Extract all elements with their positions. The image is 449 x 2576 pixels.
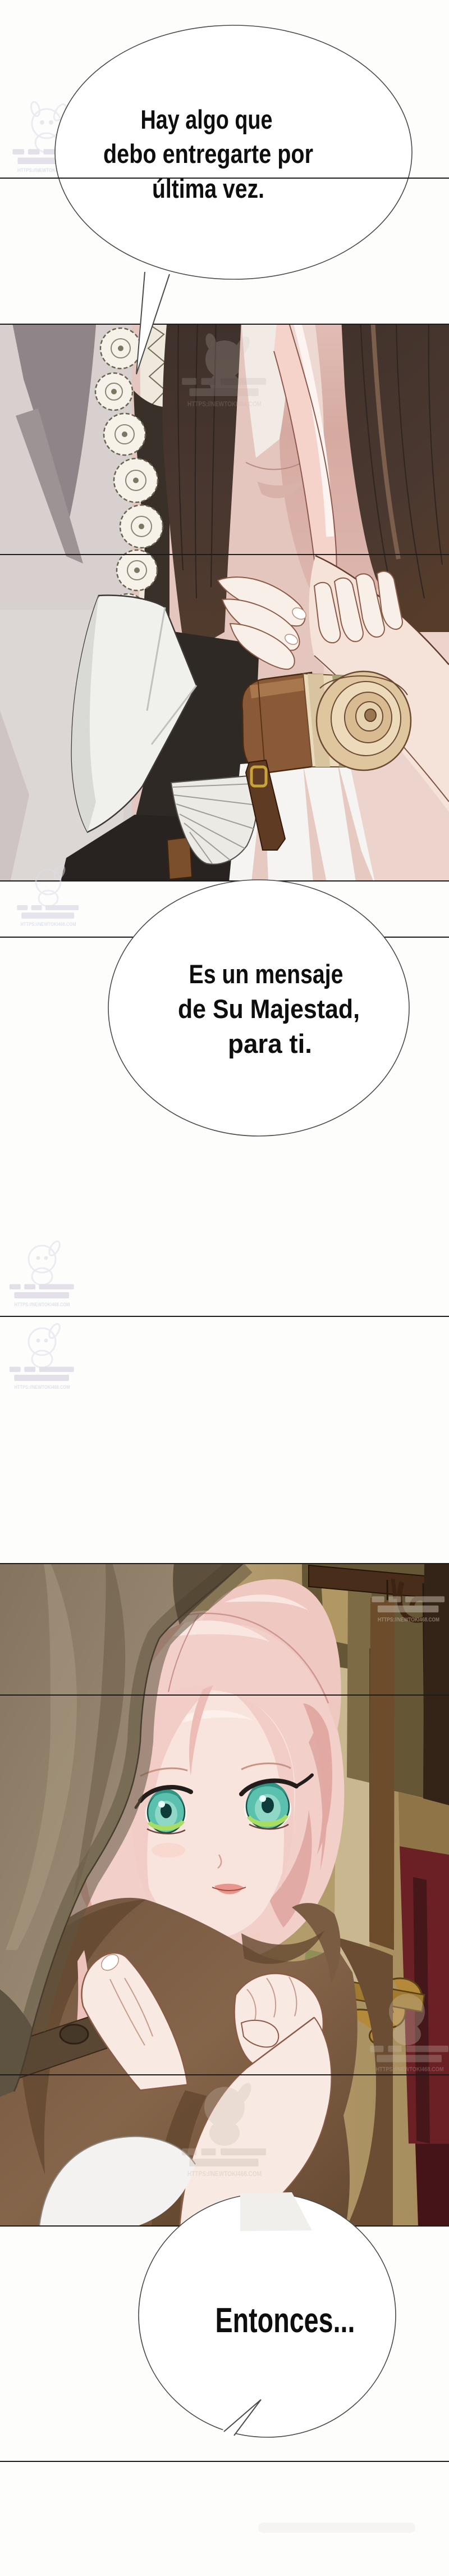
svg-text:para ti.: para ti. bbox=[228, 1029, 312, 1058]
svg-text:HTTPS://NEWTOKI468.COM: HTTPS://NEWTOKI468.COM bbox=[378, 1617, 439, 1623]
svg-text:HTTPS://NEWTOKI468.COM: HTTPS://NEWTOKI468.COM bbox=[187, 400, 262, 408]
svg-text:HTTPS://NEWTOKI468.COM: HTTPS://NEWTOKI468.COM bbox=[187, 2170, 262, 2178]
svg-text:Entonces...: Entonces... bbox=[216, 2301, 355, 2340]
svg-text:debo entregarte por: debo entregarte por bbox=[103, 139, 313, 169]
svg-text:HTTPS://NEWTOKI468.COM: HTTPS://NEWTOKI468.COM bbox=[15, 1384, 70, 1390]
svg-text:de Su Majestad,: de Su Majestad, bbox=[178, 994, 360, 1024]
svg-text:HTTPS://NEWTOKI468.COM: HTTPS://NEWTOKI468.COM bbox=[21, 921, 76, 927]
svg-text:HTTPS://NEWTOKI468.COM: HTTPS://NEWTOKI468.COM bbox=[376, 2066, 444, 2073]
svg-text:HTTPS://NEWTOKI468.COM: HTTPS://NEWTOKI468.COM bbox=[15, 1302, 70, 1307]
svg-text:Es un mensaje: Es un mensaje bbox=[189, 959, 343, 989]
svg-text:Hay algo que: Hay algo que bbox=[141, 105, 273, 134]
